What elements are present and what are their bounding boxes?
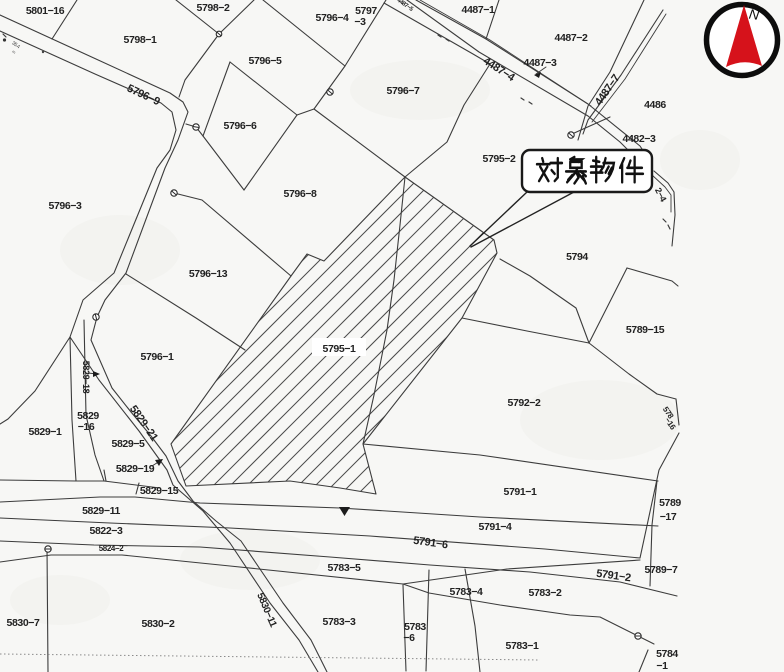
svg-text:5789−15: 5789−15 <box>626 324 665 336</box>
svg-text:5830−2: 5830−2 <box>142 618 175 630</box>
svg-text:5829−19: 5829−19 <box>116 463 155 475</box>
svg-text:−17: −17 <box>660 511 677 523</box>
svg-text:4482−3: 4482−3 <box>623 133 656 145</box>
svg-text:−1: −1 <box>656 660 668 672</box>
svg-text:5798−2: 5798−2 <box>197 2 230 14</box>
svg-text:4487−3: 4487−3 <box>524 57 557 69</box>
svg-text:5789−7: 5789−7 <box>645 564 678 576</box>
svg-text:4487−2: 4487−2 <box>555 32 588 44</box>
svg-text:5796−5: 5796−5 <box>249 55 282 67</box>
svg-text:−16: −16 <box>78 421 95 433</box>
svg-text:5794: 5794 <box>566 251 588 263</box>
svg-text:5796−4: 5796−4 <box>316 12 349 24</box>
svg-text:5829−11: 5829−11 <box>82 505 120 517</box>
svg-text:5796−13: 5796−13 <box>189 268 228 280</box>
svg-text:4486: 4486 <box>644 99 666 111</box>
svg-text:5783−5: 5783−5 <box>328 562 361 574</box>
svg-text:5783−1: 5783−1 <box>506 640 539 652</box>
svg-text:5796−3: 5796−3 <box>49 200 82 212</box>
svg-text:5796−8: 5796−8 <box>284 188 317 200</box>
svg-text:5783−2: 5783−2 <box>529 587 562 599</box>
svg-text:4487−1: 4487−1 <box>462 4 495 16</box>
svg-text:5795−1: 5795−1 <box>323 343 356 355</box>
svg-text:5822−3: 5822−3 <box>90 525 123 537</box>
svg-text:5798−1: 5798−1 <box>124 34 157 46</box>
svg-text:5829−1: 5829−1 <box>29 426 62 438</box>
svg-text:5784: 5784 <box>656 648 678 660</box>
svg-text:5829−5: 5829−5 <box>112 438 145 450</box>
svg-text:5791−1: 5791−1 <box>504 486 537 498</box>
svg-text:−6: −6 <box>403 632 415 644</box>
svg-text:5783−4: 5783−4 <box>450 586 483 598</box>
svg-text:−3: −3 <box>354 16 366 28</box>
svg-text:5829−18: 5829−18 <box>81 361 91 394</box>
svg-text:5824−2: 5824−2 <box>99 544 124 553</box>
svg-text:5783−3: 5783−3 <box>323 616 356 628</box>
svg-text:5791−4: 5791−4 <box>479 521 512 533</box>
svg-text:5830−7: 5830−7 <box>7 617 40 629</box>
svg-text:5796−7: 5796−7 <box>387 85 420 97</box>
svg-text:5795−2: 5795−2 <box>483 153 516 165</box>
svg-text:5829−15: 5829−15 <box>140 485 179 497</box>
svg-text:5792−2: 5792−2 <box>508 397 541 409</box>
svg-text:5796−6: 5796−6 <box>224 120 257 132</box>
svg-text:5796−1: 5796−1 <box>141 351 174 363</box>
svg-text:5801−16: 5801−16 <box>26 5 65 17</box>
svg-text:5789: 5789 <box>659 497 681 509</box>
